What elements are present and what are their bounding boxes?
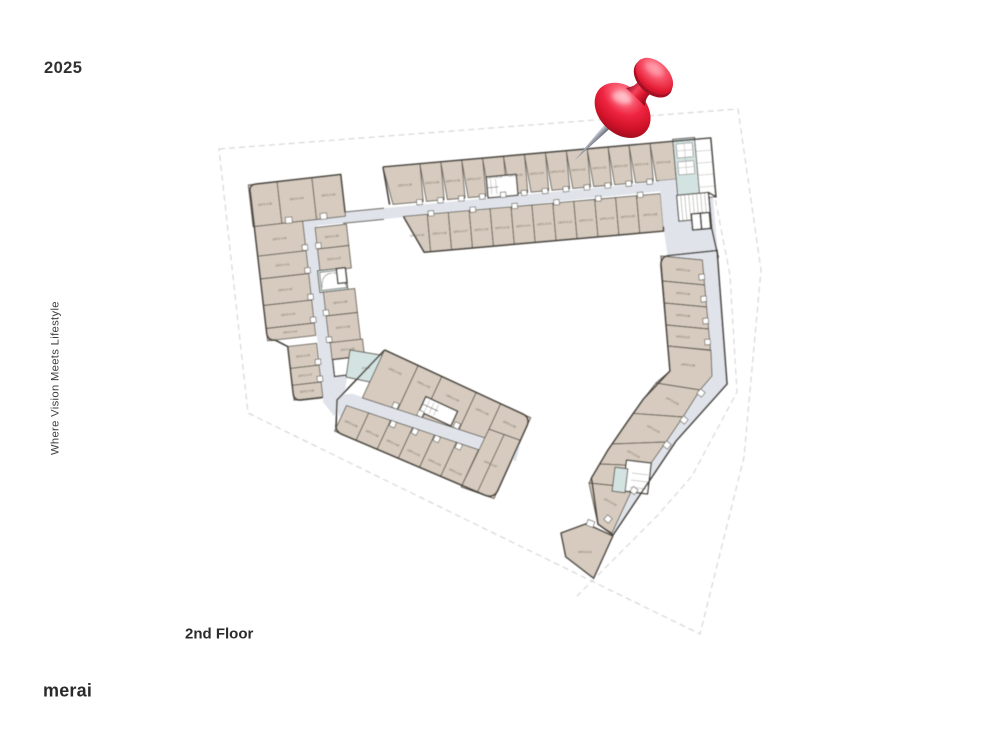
svg-text:merai: merai — [43, 681, 92, 701]
svg-text:OFF2-5-01: OFF2-5-01 — [578, 550, 593, 554]
svg-text:2025: 2025 — [44, 59, 82, 77]
svg-text:2nd Floor: 2nd Floor — [185, 626, 253, 643]
svg-text:Where Vision Meets Lifestyle: Where Vision Meets Lifestyle — [50, 301, 62, 455]
